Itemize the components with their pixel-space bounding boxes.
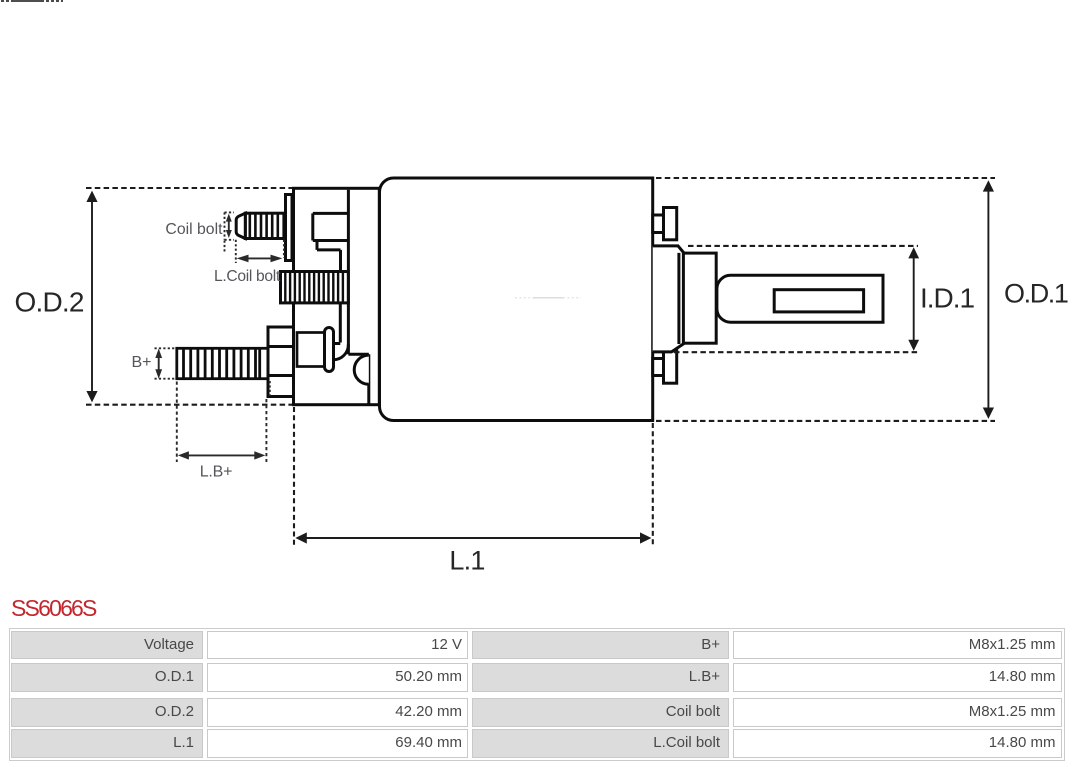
svg-text:L.1: L.1	[449, 546, 484, 576]
svg-text:I.D.1: I.D.1	[920, 283, 975, 314]
svg-text:L.Coil bolt: L.Coil bolt	[214, 268, 281, 285]
svg-text:B+: B+	[131, 354, 151, 371]
svg-text:O.D.2: O.D.2	[15, 287, 84, 318]
svg-text:Coil bolt: Coil bolt	[165, 221, 223, 238]
svg-text:L.B+: L.B+	[200, 464, 233, 481]
svg-text:O.D.1: O.D.1	[1004, 279, 1068, 309]
